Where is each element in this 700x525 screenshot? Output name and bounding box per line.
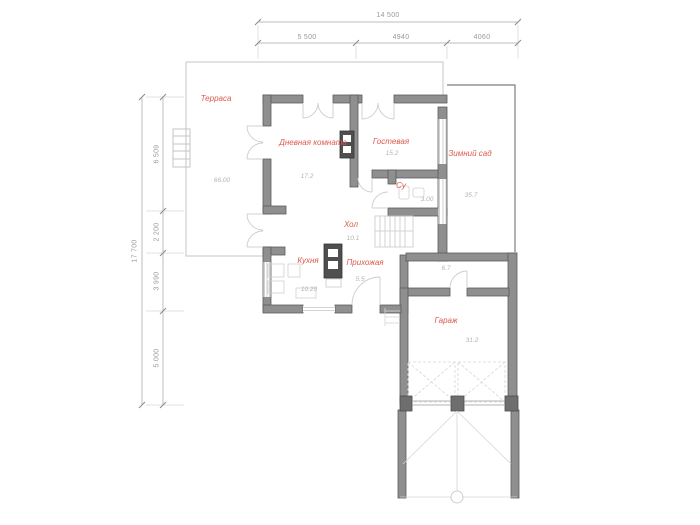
room-area-terrace: 66.00 (214, 177, 230, 184)
floor-plan-canvas: 14 500 5 500 4940 4060 17 700 6 509 2 20… (0, 0, 700, 525)
dim-width-seg2: 4940 (393, 34, 410, 41)
room-area-kitchen: 10.20 (301, 286, 317, 293)
winter-garden-outline (447, 85, 515, 252)
entry-steps (385, 308, 400, 326)
room-area-guest-room: 15.2 (386, 150, 399, 157)
terrace-steps (173, 129, 190, 167)
room-label-entryway: Прихожая (346, 258, 383, 267)
terrace-outline (173, 62, 443, 256)
room-label-bathroom: Су (396, 181, 406, 190)
room-label-guest-room: Гостевая (373, 137, 409, 146)
dim-width-seg1: 5 500 (297, 34, 316, 41)
dim-height-seg1: 6 509 (154, 144, 161, 163)
dim-height-seg3: 3 990 (154, 271, 161, 290)
dim-height-seg4: 5 000 (154, 348, 161, 367)
room-area-corridor: 6.7 (441, 265, 450, 272)
extension-lines (146, 25, 518, 405)
room-label-garage: Гараж (435, 316, 458, 325)
dim-width-seg3: 4060 (474, 34, 491, 41)
room-label-hall: Хол (344, 220, 358, 229)
room-label-kitchen: Кухня (297, 256, 318, 265)
room-label-terrace: Терраса (201, 94, 232, 103)
room-area-living-room: 17.2 (301, 173, 314, 180)
room-label-winter-garden: Зимний сад (448, 149, 491, 158)
room-area-winter-garden: 35.7 (465, 192, 478, 199)
dim-overall-width: 14 500 (376, 12, 399, 19)
room-label-living-room: Дневная комната (279, 138, 347, 147)
room-area-entryway: 5.5 (355, 276, 364, 283)
room-area-bathroom: 3.00 (421, 196, 434, 203)
room-area-hall: 10.1 (347, 235, 360, 242)
driveway (400, 411, 517, 503)
dimension-ticks (139, 19, 521, 408)
dimension-lines (139, 19, 521, 408)
dim-height-seg2: 2 200 (154, 222, 161, 241)
room-area-garage: 31.2 (466, 337, 479, 344)
dim-overall-height: 17 700 (132, 239, 139, 262)
staircase (375, 216, 413, 247)
